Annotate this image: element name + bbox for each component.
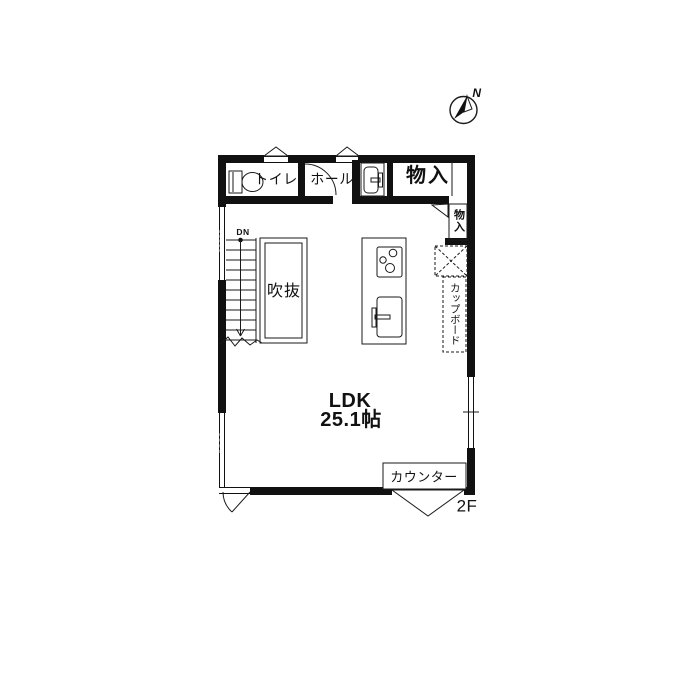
roof-window-triangle	[336, 147, 359, 156]
roof-window-triangle	[264, 147, 288, 156]
floor-plan: トイレ ホール 物入 物入 吹抜 DN LDK 25.1帖 カップボード カウン…	[0, 0, 700, 700]
toilet-label: トイレ	[254, 172, 298, 186]
cupboard-label: カップボード	[449, 283, 460, 346]
storage-door-triangle	[432, 204, 448, 217]
bay-window	[392, 490, 464, 516]
hall-label: ホール	[310, 172, 354, 186]
ldk-label: LDK	[329, 391, 372, 411]
ldk-size-label: 25.1帖	[320, 410, 381, 430]
void-label: 吹抜	[267, 284, 301, 300]
storage-side-label: 物入	[453, 209, 464, 233]
counter-label: カウンター	[390, 471, 458, 484]
exterior-door-leaf	[232, 492, 250, 512]
kitchen-island	[362, 238, 406, 344]
exterior-door-arc	[223, 492, 232, 512]
floor-label: 2F	[457, 498, 478, 515]
storage-top-label: 物入	[406, 166, 450, 186]
plan-linework	[0, 0, 700, 700]
toilet-icon	[229, 171, 242, 193]
stairs-path-arrow	[237, 238, 245, 336]
north-arrow-icon	[450, 96, 477, 124]
stairs-dn-label: DN	[236, 228, 249, 237]
north-label: N	[472, 87, 481, 99]
